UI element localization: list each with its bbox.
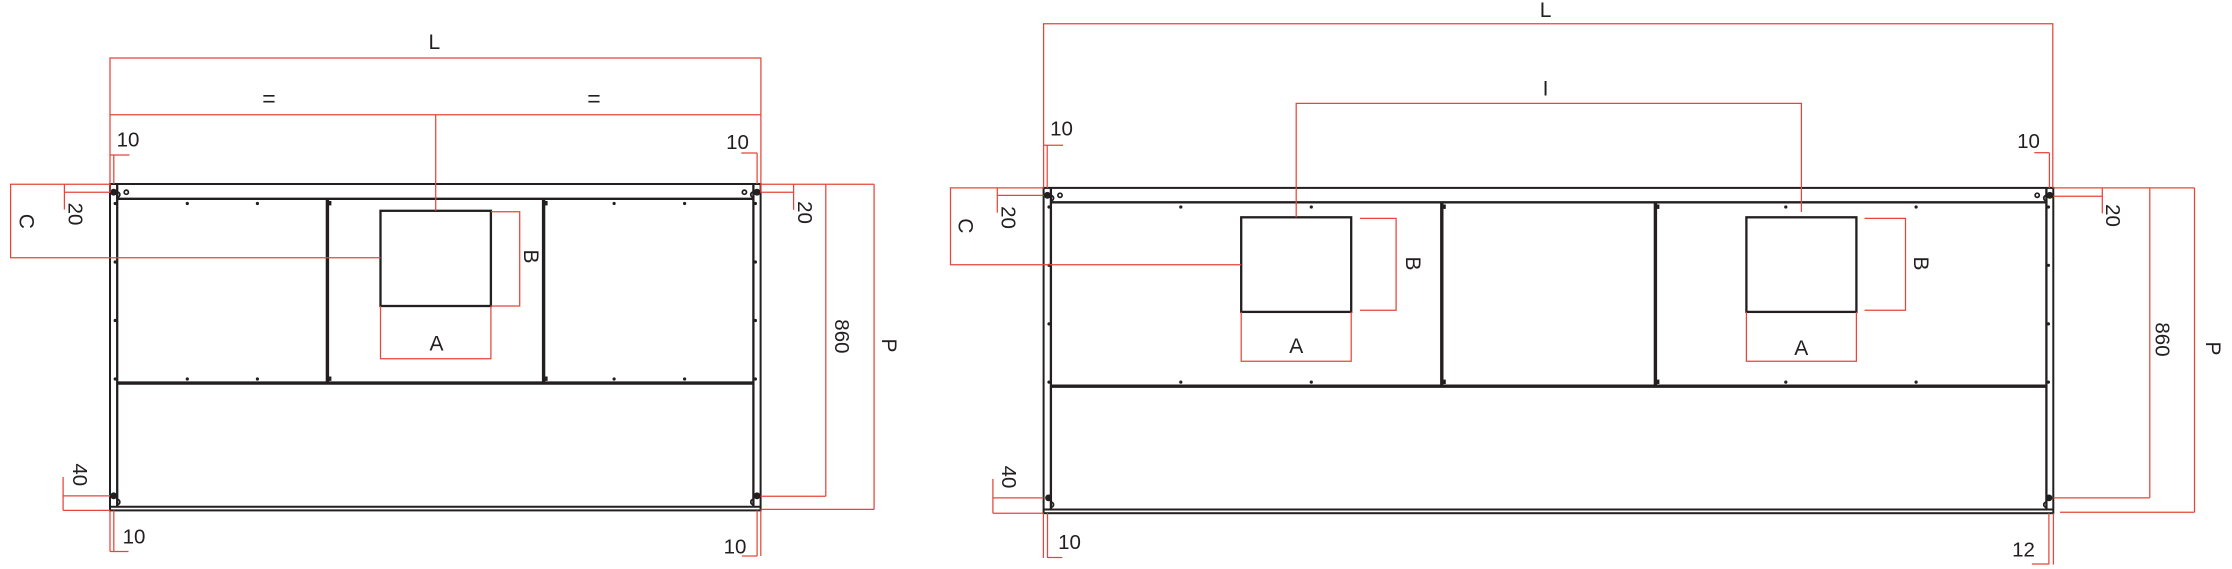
svg-text:20: 20 [793, 201, 816, 224]
svg-text:A: A [1794, 337, 1808, 360]
svg-text:20: 20 [63, 203, 86, 226]
svg-text:B: B [1909, 256, 1932, 270]
svg-text:10: 10 [724, 536, 747, 559]
svg-text:10: 10 [726, 131, 749, 154]
svg-text:B: B [519, 249, 542, 263]
svg-text:P: P [877, 338, 900, 352]
svg-text:20: 20 [996, 206, 1019, 229]
svg-text:=: = [587, 86, 600, 112]
svg-text:10: 10 [1050, 118, 1073, 141]
svg-text:860: 860 [830, 319, 853, 353]
svg-text:20: 20 [2101, 204, 2124, 227]
svg-text:10: 10 [2017, 130, 2040, 153]
svg-text:40: 40 [68, 463, 91, 486]
svg-text:A: A [429, 333, 443, 356]
svg-text:12: 12 [2012, 539, 2035, 562]
svg-text:10: 10 [117, 128, 140, 151]
svg-text:L: L [428, 31, 440, 54]
svg-text:B: B [1401, 256, 1424, 270]
svg-text:=: = [262, 86, 275, 112]
svg-text:L: L [1540, 0, 1552, 22]
svg-text:A: A [1289, 335, 1303, 358]
svg-text:40: 40 [997, 466, 1020, 489]
svg-text:C: C [953, 218, 976, 233]
svg-text:860: 860 [2150, 322, 2173, 356]
svg-text:P: P [2201, 341, 2224, 355]
svg-text:10: 10 [1058, 531, 1081, 554]
svg-text:I: I [1543, 78, 1549, 101]
svg-text:C: C [14, 214, 37, 229]
svg-text:10: 10 [123, 526, 146, 549]
